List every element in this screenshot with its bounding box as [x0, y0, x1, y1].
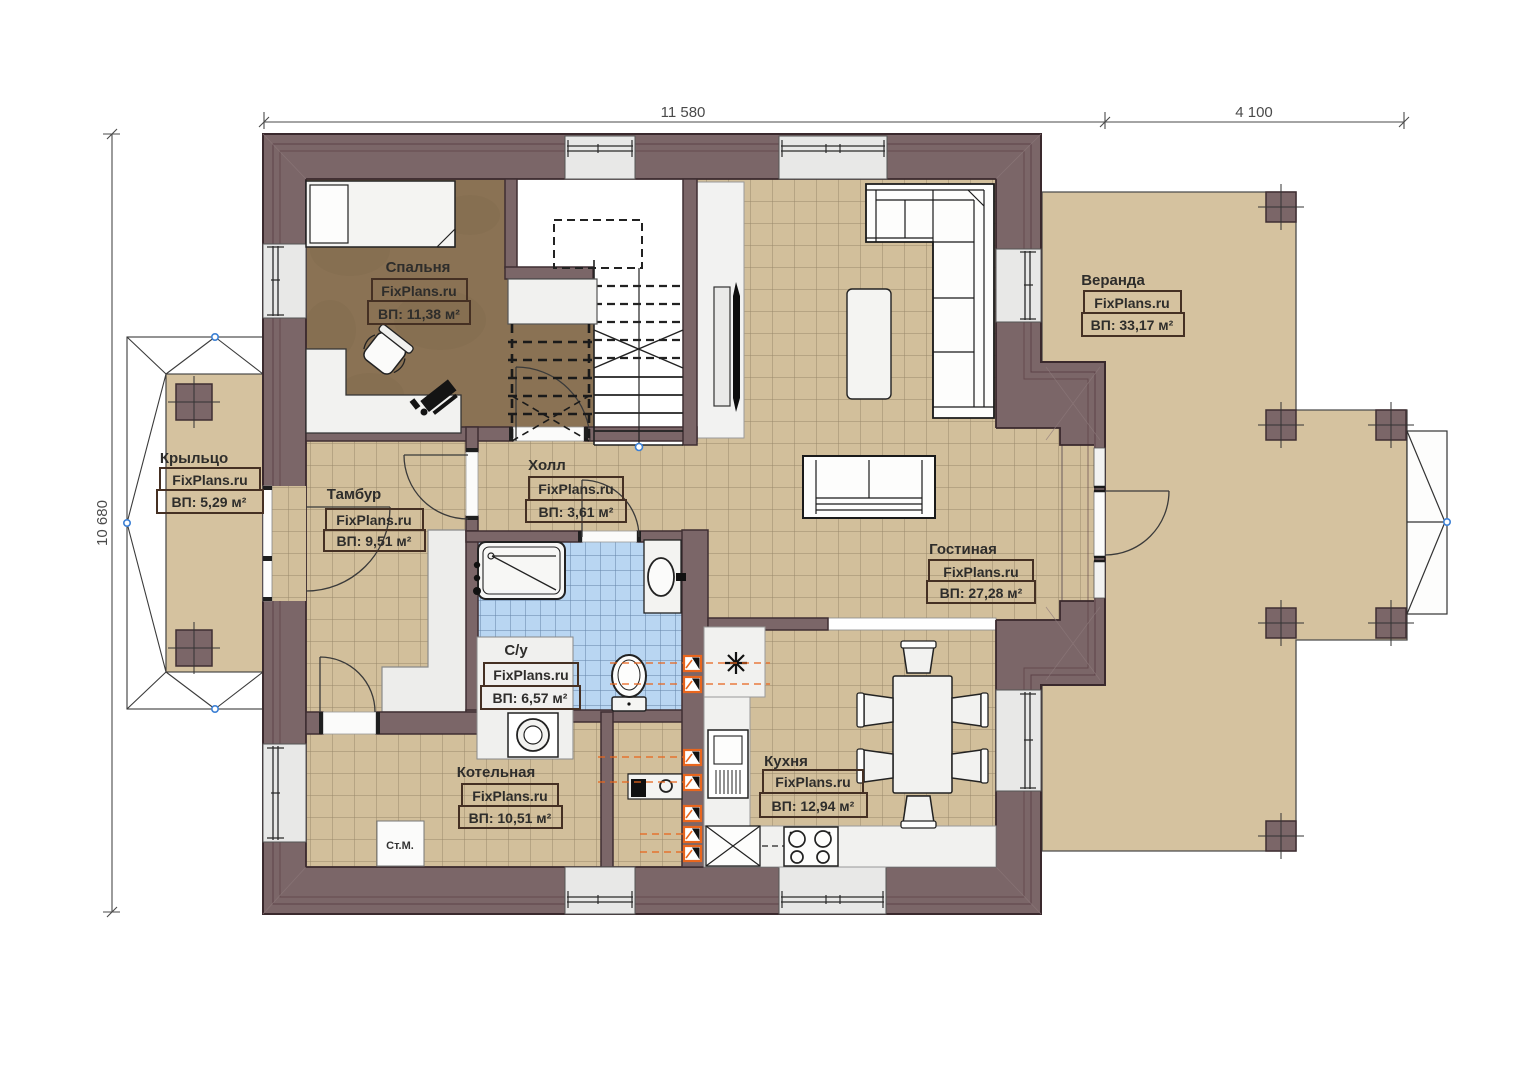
svg-text:Спальня: Спальня	[386, 259, 451, 276]
svg-text:ВП: 33,17 м²: ВП: 33,17 м²	[1091, 317, 1174, 333]
svg-text:Веранда: Веранда	[1081, 272, 1145, 289]
svg-text:ВП: 27,28 м²: ВП: 27,28 м²	[940, 585, 1023, 601]
svg-text:Холл: Холл	[528, 457, 566, 474]
svg-text:FixPlans.ru: FixPlans.ru	[775, 774, 850, 790]
svg-text:FixPlans.ru: FixPlans.ru	[172, 472, 247, 488]
svg-text:ВП: 12,94 м²: ВП: 12,94 м²	[772, 798, 855, 814]
svg-text:4 100: 4 100	[1235, 104, 1273, 121]
svg-text:ВП: 5,29 м²: ВП: 5,29 м²	[172, 494, 247, 510]
svg-text:FixPlans.ru: FixPlans.ru	[943, 564, 1018, 580]
svg-text:Ст.М.: Ст.М.	[386, 840, 414, 852]
svg-text:ВП: 6,57 м²: ВП: 6,57 м²	[493, 690, 568, 706]
svg-text:FixPlans.ru: FixPlans.ru	[336, 512, 411, 528]
svg-text:ВП: 11,38 м²: ВП: 11,38 м²	[378, 306, 460, 322]
svg-text:Гостиная: Гостиная	[929, 541, 997, 558]
svg-text:FixPlans.ru: FixPlans.ru	[493, 667, 568, 683]
svg-text:10 680: 10 680	[94, 500, 111, 546]
svg-text:ВП: 10,51 м²: ВП: 10,51 м²	[469, 810, 552, 826]
svg-text:ВП: 3,61 м²: ВП: 3,61 м²	[539, 504, 614, 520]
svg-text:11 580: 11 580	[661, 104, 706, 121]
svg-text:С/у: С/у	[504, 642, 528, 659]
svg-text:Котельная: Котельная	[457, 764, 536, 781]
svg-text:Кухня: Кухня	[764, 753, 808, 770]
svg-text:FixPlans.ru: FixPlans.ru	[538, 481, 613, 497]
svg-text:FixPlans.ru: FixPlans.ru	[381, 283, 456, 299]
svg-text:ВП: 9,51 м²: ВП: 9,51 м²	[337, 533, 412, 549]
svg-text:FixPlans.ru: FixPlans.ru	[472, 788, 547, 804]
svg-text:Тамбур: Тамбур	[327, 486, 381, 503]
svg-text:FixPlans.ru: FixPlans.ru	[1094, 295, 1169, 311]
svg-text:Крыльцо: Крыльцо	[160, 450, 228, 467]
